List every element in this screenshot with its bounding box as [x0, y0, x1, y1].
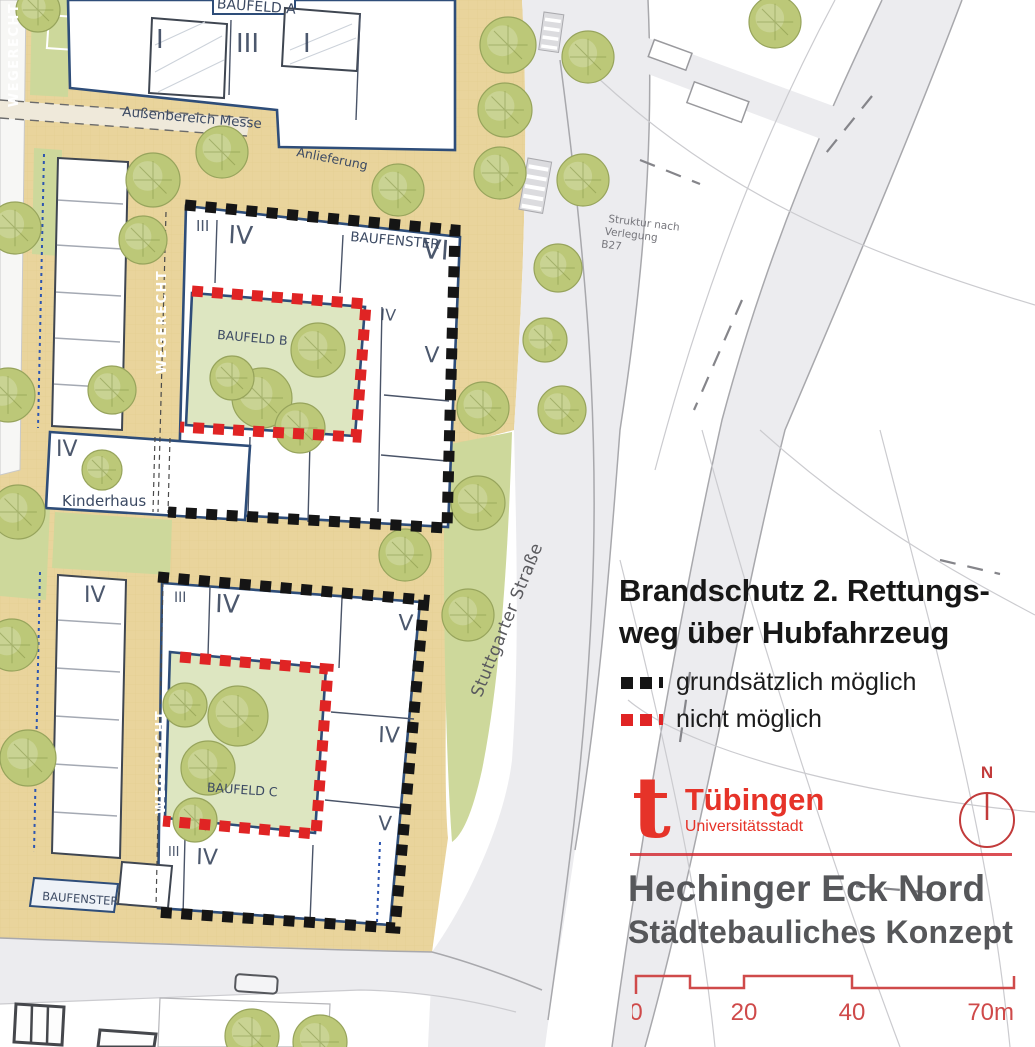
- tree-icon: [291, 323, 345, 377]
- storey-label: IV: [84, 583, 106, 608]
- tree-icon: [88, 366, 136, 414]
- logo-city-name: Tübingen: [685, 784, 824, 816]
- storey-label: V: [398, 611, 414, 637]
- project-title: Hechinger Eck Nord: [628, 868, 985, 910]
- planning-sheet: BAUFELD A I III I Außenbereich Messe Anl…: [0, 0, 1035, 1047]
- tree-icon: [478, 83, 532, 137]
- b27-note-line: B27: [600, 238, 622, 252]
- tree-icon: [293, 1015, 347, 1047]
- legend-item-possible: grundsätzlich möglich: [621, 668, 916, 697]
- storey-label: IV: [56, 437, 78, 462]
- storey-label: I: [156, 25, 164, 55]
- storey-label: V: [424, 343, 440, 369]
- storey-label: III: [236, 29, 259, 59]
- tree-icon: [126, 153, 180, 207]
- tree-icon: [562, 31, 614, 83]
- tree-icon: [749, 0, 801, 48]
- tree-icon: [451, 476, 505, 530]
- storey-label: VI: [422, 234, 451, 267]
- tree-icon: [534, 244, 582, 292]
- tree-icon: [196, 126, 248, 178]
- heading-line-1: Brandschutz 2. Rettungs-: [619, 573, 990, 608]
- storey-label: I: [303, 29, 311, 59]
- tree-icon: [538, 386, 586, 434]
- car-outline: [235, 974, 278, 994]
- tree-icon: [557, 154, 609, 206]
- tree-icon: [225, 1009, 279, 1047]
- scale-tick-label: 20: [731, 999, 758, 1026]
- tuebingen-logo: t Tübingen Universitätsstadt: [632, 768, 824, 837]
- tuebingen-logo-t-icon: t: [632, 774, 671, 843]
- storey-label: IV: [196, 845, 218, 871]
- storey-label: IV: [378, 723, 400, 749]
- scale-tick-label: 0: [632, 999, 643, 1026]
- tree-icon: [82, 450, 122, 490]
- wegerecht-label: WEGERECHT: [154, 710, 169, 814]
- tree-icon: [442, 589, 494, 641]
- wegerecht-label: WEGERECHT: [7, 3, 22, 107]
- storey-label: III: [168, 845, 180, 860]
- legend-label: nicht möglich: [676, 705, 822, 734]
- logo-city-subtitle: Universitätsstadt: [685, 818, 824, 836]
- storey-label: IV: [228, 220, 254, 250]
- tree-icon: [210, 356, 254, 400]
- black-dash-swatch: [621, 677, 663, 689]
- storey-label: III: [174, 590, 186, 606]
- tree-icon: [480, 17, 536, 73]
- tree-icon: [523, 318, 567, 362]
- north-indicator: N: [950, 760, 1024, 858]
- tree-icon: [457, 382, 509, 434]
- wegerecht-label: WEGERECHT: [155, 270, 170, 374]
- scale-tick-label: 40: [839, 999, 866, 1026]
- kinderhaus-label: Kinderhaus: [62, 492, 146, 510]
- tree-icon: [372, 164, 424, 216]
- tree-icon: [208, 686, 268, 746]
- legend-item-not-possible: nicht möglich: [621, 705, 822, 734]
- storey-label: IV: [215, 589, 240, 619]
- red-dash-swatch: [621, 714, 663, 726]
- storey-label: III: [196, 217, 209, 235]
- tree-icon: [119, 216, 167, 264]
- scale-bar: 0 20 40 70m: [632, 968, 1022, 1038]
- brandschutz-heading: Brandschutz 2. Rettungs- weg über Hubfah…: [619, 570, 1029, 653]
- tree-icon: [474, 147, 526, 199]
- tree-icon: [163, 683, 207, 727]
- red-divider: [630, 853, 1012, 856]
- heading-line-2: weg über Hubfahrzeug: [619, 615, 949, 650]
- storey-label: V: [378, 811, 393, 835]
- tree-icon: [0, 730, 56, 786]
- scale-bar-line: [636, 976, 1014, 994]
- tree-icon: [379, 529, 431, 581]
- legend-label: grundsätzlich möglich: [676, 668, 916, 697]
- storey-label: IV: [380, 305, 397, 325]
- north-label: N: [981, 763, 993, 782]
- scale-tick-label: 70m: [967, 999, 1014, 1026]
- project-subtitle: Städtebauliches Konzept: [628, 914, 1013, 951]
